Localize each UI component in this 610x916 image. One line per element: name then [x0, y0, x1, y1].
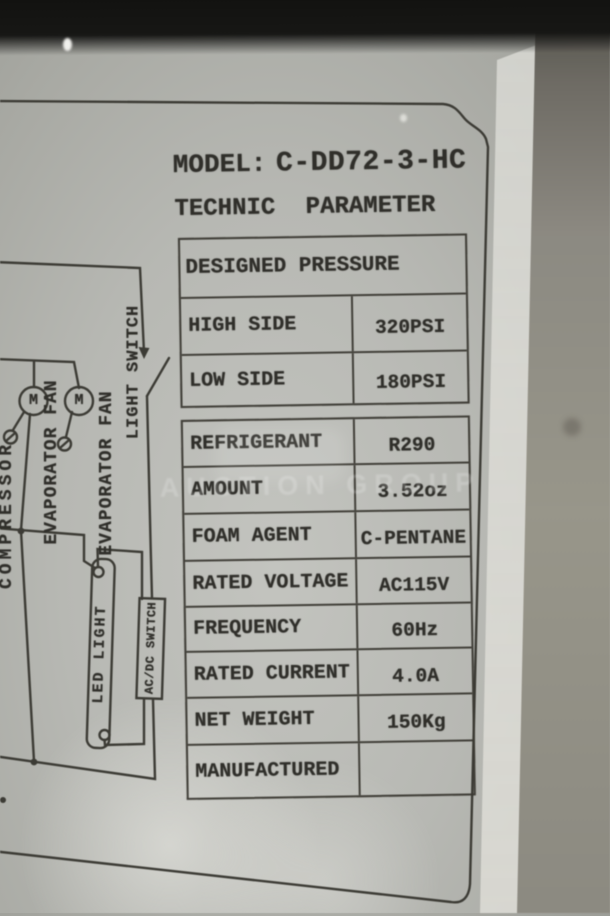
spec-label: FREQUENCY: [186, 605, 359, 651]
nameplate-photo: M M COMPRESSOR EVAPORATOR FAN EVAPORATOR…: [0, 0, 610, 913]
pressure-label: HIGH SIDE: [181, 296, 354, 354]
spec-value: C-PENTANE: [357, 510, 470, 557]
table-row: LOW SIDE 180PSI: [182, 349, 468, 405]
spec-value: R290: [355, 417, 468, 463]
spec-value: AC115V: [357, 557, 470, 603]
table-row: RATED CURRENT 4.0A: [186, 646, 472, 696]
pressure-value: 320PSI: [353, 294, 466, 351]
spec-value: [360, 741, 473, 795]
spec-label: RATED VOLTAGE: [185, 559, 358, 606]
watermark-text: AUCTION GROUP: [140, 467, 500, 504]
designed-pressure-table: DESIGNED PRESSURE HIGH SIDE 320PSI LOW S…: [178, 233, 470, 408]
table-row: DESIGNED PRESSURE: [180, 235, 466, 296]
table-row: RATED VOLTAGE AC115V: [185, 555, 471, 605]
plate-subtitle: TECHNIC PARAMETER: [174, 192, 435, 223]
spec-value: 4.0A: [359, 648, 472, 694]
junction-dot: [0, 797, 6, 803]
spec-label: RATED CURRENT: [186, 650, 359, 697]
pressure-header: DESIGNED PRESSURE: [180, 235, 466, 296]
spec-value: 150Kg: [360, 694, 473, 741]
spec-label: NET WEIGHT: [187, 696, 360, 744]
pressure-label: LOW SIDE: [182, 353, 355, 406]
model-value: C-DD72-3-HC: [276, 145, 467, 179]
model-label: MODEL:: [173, 149, 267, 180]
table-row: NET WEIGHT 150Kg: [187, 692, 473, 743]
table-row: FOAM AGENT C-PENTANE: [184, 508, 470, 559]
table-row: FREQUENCY 60Hz: [186, 601, 472, 650]
table-row: HIGH SIDE 320PSI: [181, 292, 467, 353]
spec-label: FOAM AGENT: [184, 512, 357, 560]
spec-value: 60Hz: [358, 603, 471, 648]
spec-label: MANUFACTURED: [188, 743, 361, 798]
table-row: MANUFACTURED: [188, 739, 474, 797]
pressure-value: 180PSI: [354, 351, 467, 403]
model-title: MODEL: C-DD72-3-HC: [173, 145, 467, 181]
